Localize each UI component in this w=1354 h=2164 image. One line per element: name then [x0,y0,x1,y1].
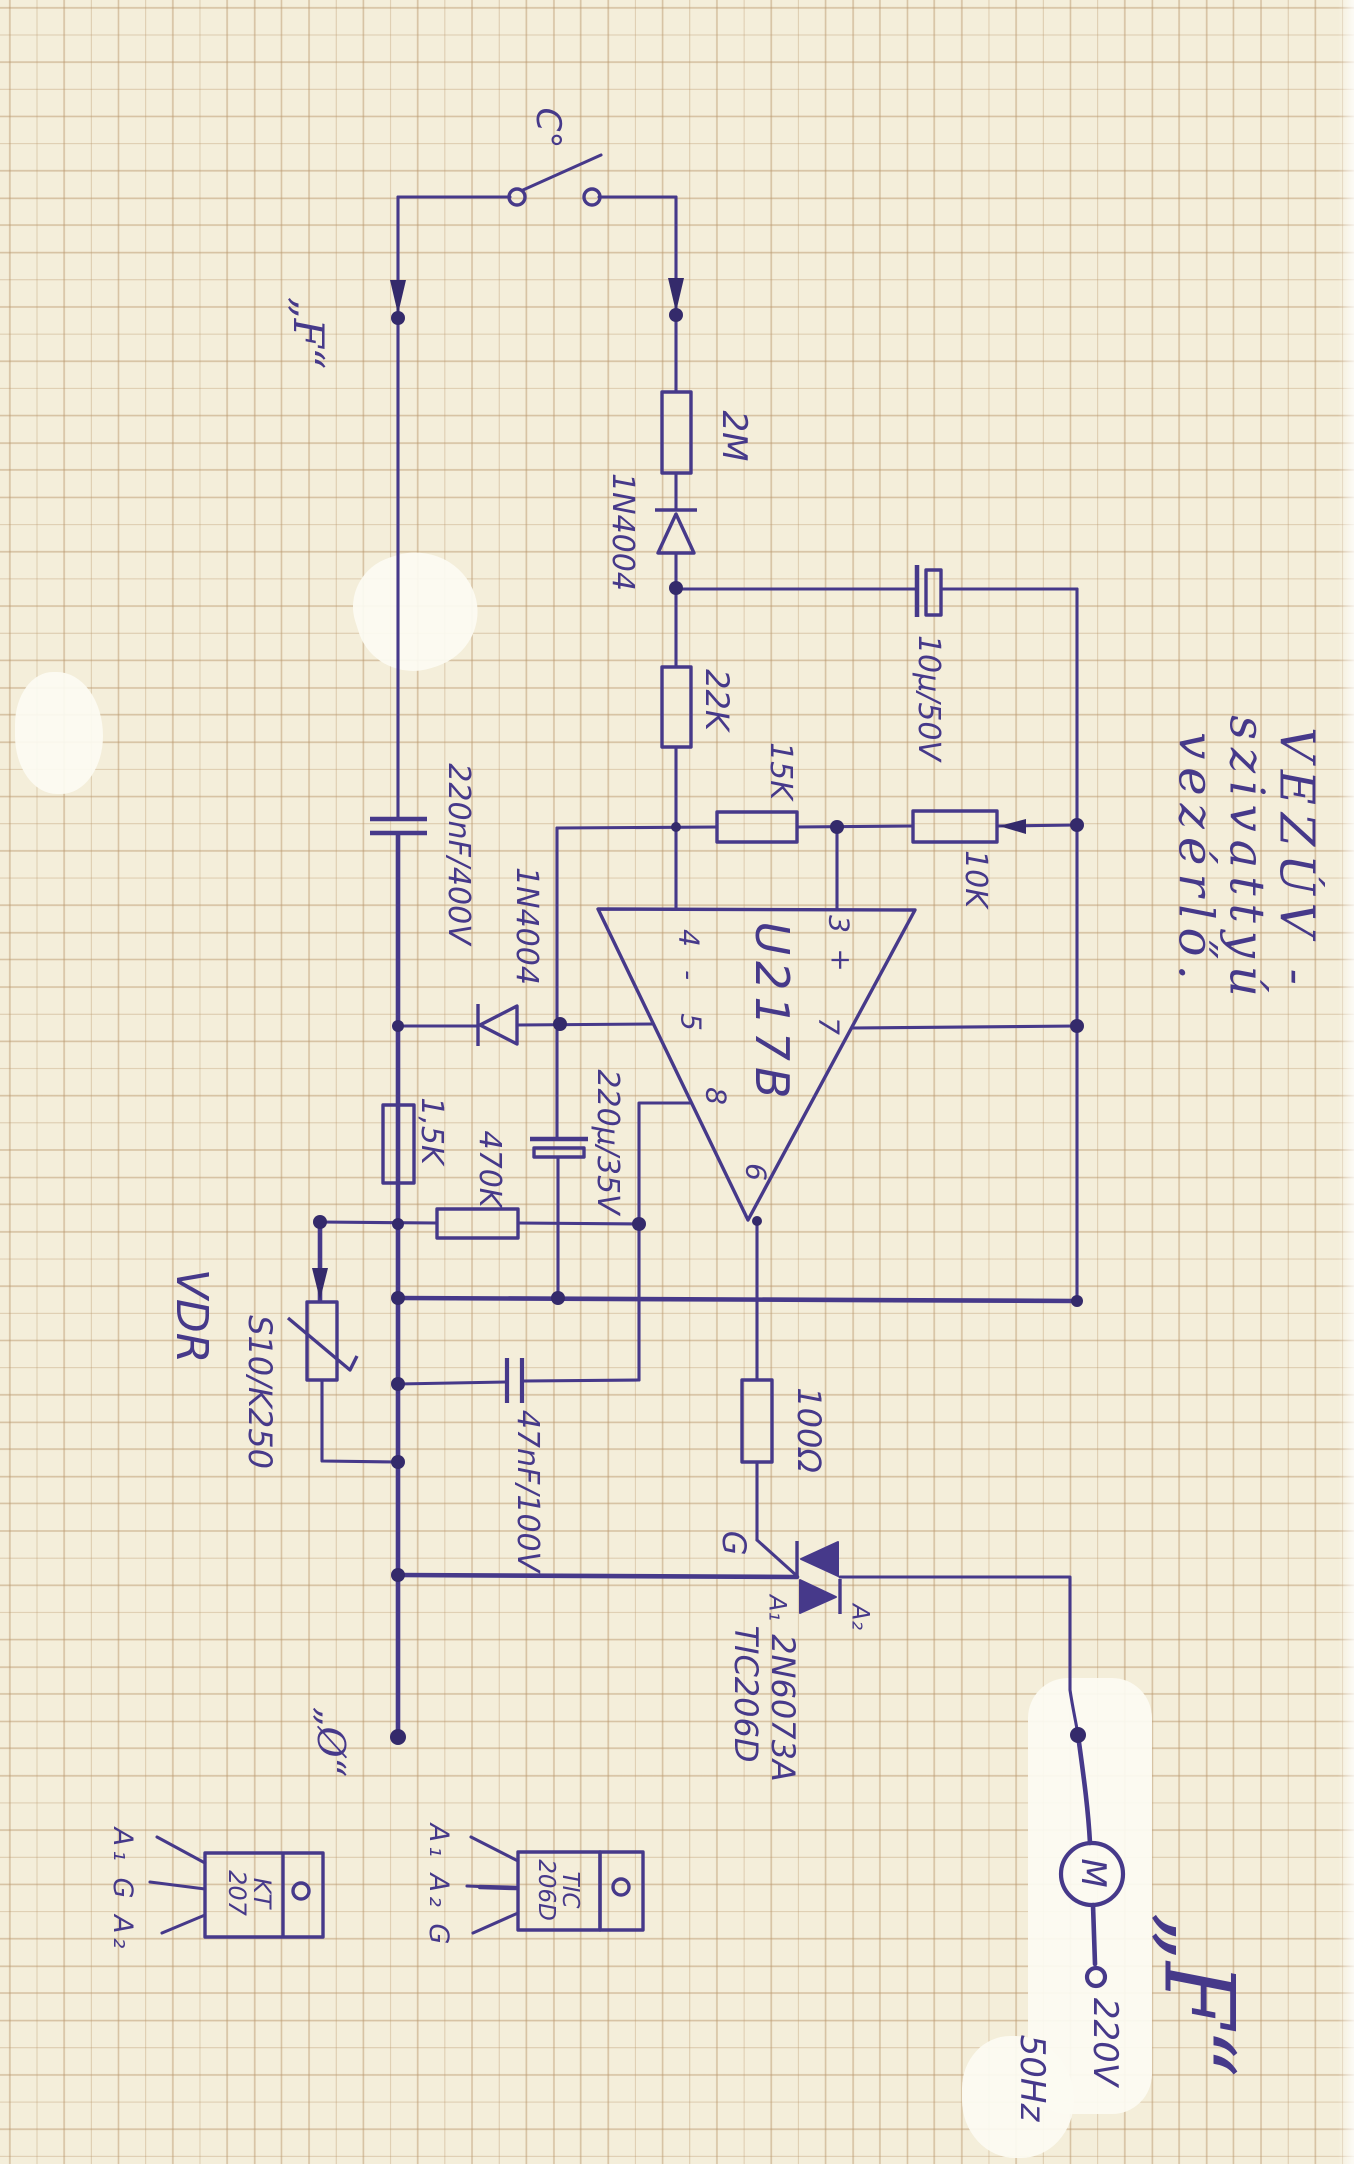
vdr-type-label: S10/K250 [242,1315,276,1469]
ic-label: U217B [748,921,796,1104]
pin7-wire [852,1026,1077,1028]
pin-minus-label: - [674,970,703,980]
paper-edge [1338,0,1354,2164]
phase-top-label: „F“ [286,297,330,369]
triac-type1-label: TIC206D [728,1625,762,1762]
row-15K-10K [557,811,1077,909]
triac-type2-label: 2N6073A [765,1634,799,1782]
capacitor-47nF-label: 47nF/100V [511,1410,543,1572]
resistor-22K [662,667,691,747]
pin5-row-diode [398,1004,653,1046]
resistor-1k5-label: 1,5K [415,1097,447,1164]
diode-1N4004-2 [478,1004,517,1046]
capacitor-220u-label: 220μ/35V [591,1069,623,1214]
pin5-label: 5 [676,1013,705,1031]
capacitor-10u-label: 10μ/50V [912,635,944,761]
triac-a1-label: A₁ [764,1595,789,1621]
resistor-15K [717,812,797,842]
pin7-label: 7 [814,1017,843,1035]
diode1-label: 1N4004 [606,473,638,591]
phase-bottom-label: „F“ [1148,1912,1249,2077]
pkg2-type-label: TIC 206D [534,1859,582,1921]
pkg2-pins-label: A₁ A₂ G [424,1824,452,1949]
capacitor-220nF-label: 220nF/400V [442,763,474,944]
mid-bottom-row [398,1298,1077,1301]
resistor-470K [437,1209,518,1238]
mains-freq-label: 50Hz [1013,2035,1049,2122]
resistor-100R-label: 100Ω [791,1387,825,1473]
resistor-10K [913,811,997,842]
vdr-name-label: VDR [168,1269,214,1364]
pkg1-type-label: KT 207 [224,1870,274,1916]
diode2-label: 1N4004 [510,867,542,985]
varistor-VDR [288,1222,398,1462]
motor-label: M [1074,1858,1110,1887]
capacitor-10u-row [676,565,1077,617]
diode-1N4004-1 [655,510,697,553]
thermostat-label: C° [529,108,565,149]
resistor-15K-label: 15K [764,742,796,800]
pkg1-pins-label: A₁ G A₂ [108,1828,136,1953]
resistor-2M-label: 2M [715,411,751,462]
capacitor-47nF [507,1358,522,1403]
triac-TIC206D [797,1541,840,1614]
mains-terminal [1087,1968,1105,1986]
pin8-label: 8 [701,1087,730,1105]
resistor-2M [662,392,691,473]
pin6-label: 6 [741,1163,770,1181]
resistor-10K-label: 10K [959,850,991,908]
resistor-100R [742,1380,772,1462]
resistor-470K-label: 470K [473,1131,505,1208]
schematic-svg [0,0,1354,2164]
pin4-label: 4 [674,929,703,947]
pin-plus-label: + [826,948,855,971]
thermostat-switch [509,155,601,205]
resistor-22K-label: 22K [699,669,733,731]
pin3-label: 3 [824,915,853,933]
page-title: VEZÚV - szivattyú vezérlő. [1170,715,1321,1005]
neutral-bottom-label: „Ø“ [310,1707,350,1777]
mains-voltage-label: 220V [1086,1998,1122,2086]
triac-a2-label: A₂ [847,1604,872,1630]
capacitor-220u [530,1139,588,1157]
gate-label: G [716,1531,750,1556]
output-branch [742,1220,797,1576]
scanned-schematic-page: { "colors": { "paper": "#f4eeda", "grid"… [0,0,1354,2164]
capacitor-220nF [370,819,427,833]
